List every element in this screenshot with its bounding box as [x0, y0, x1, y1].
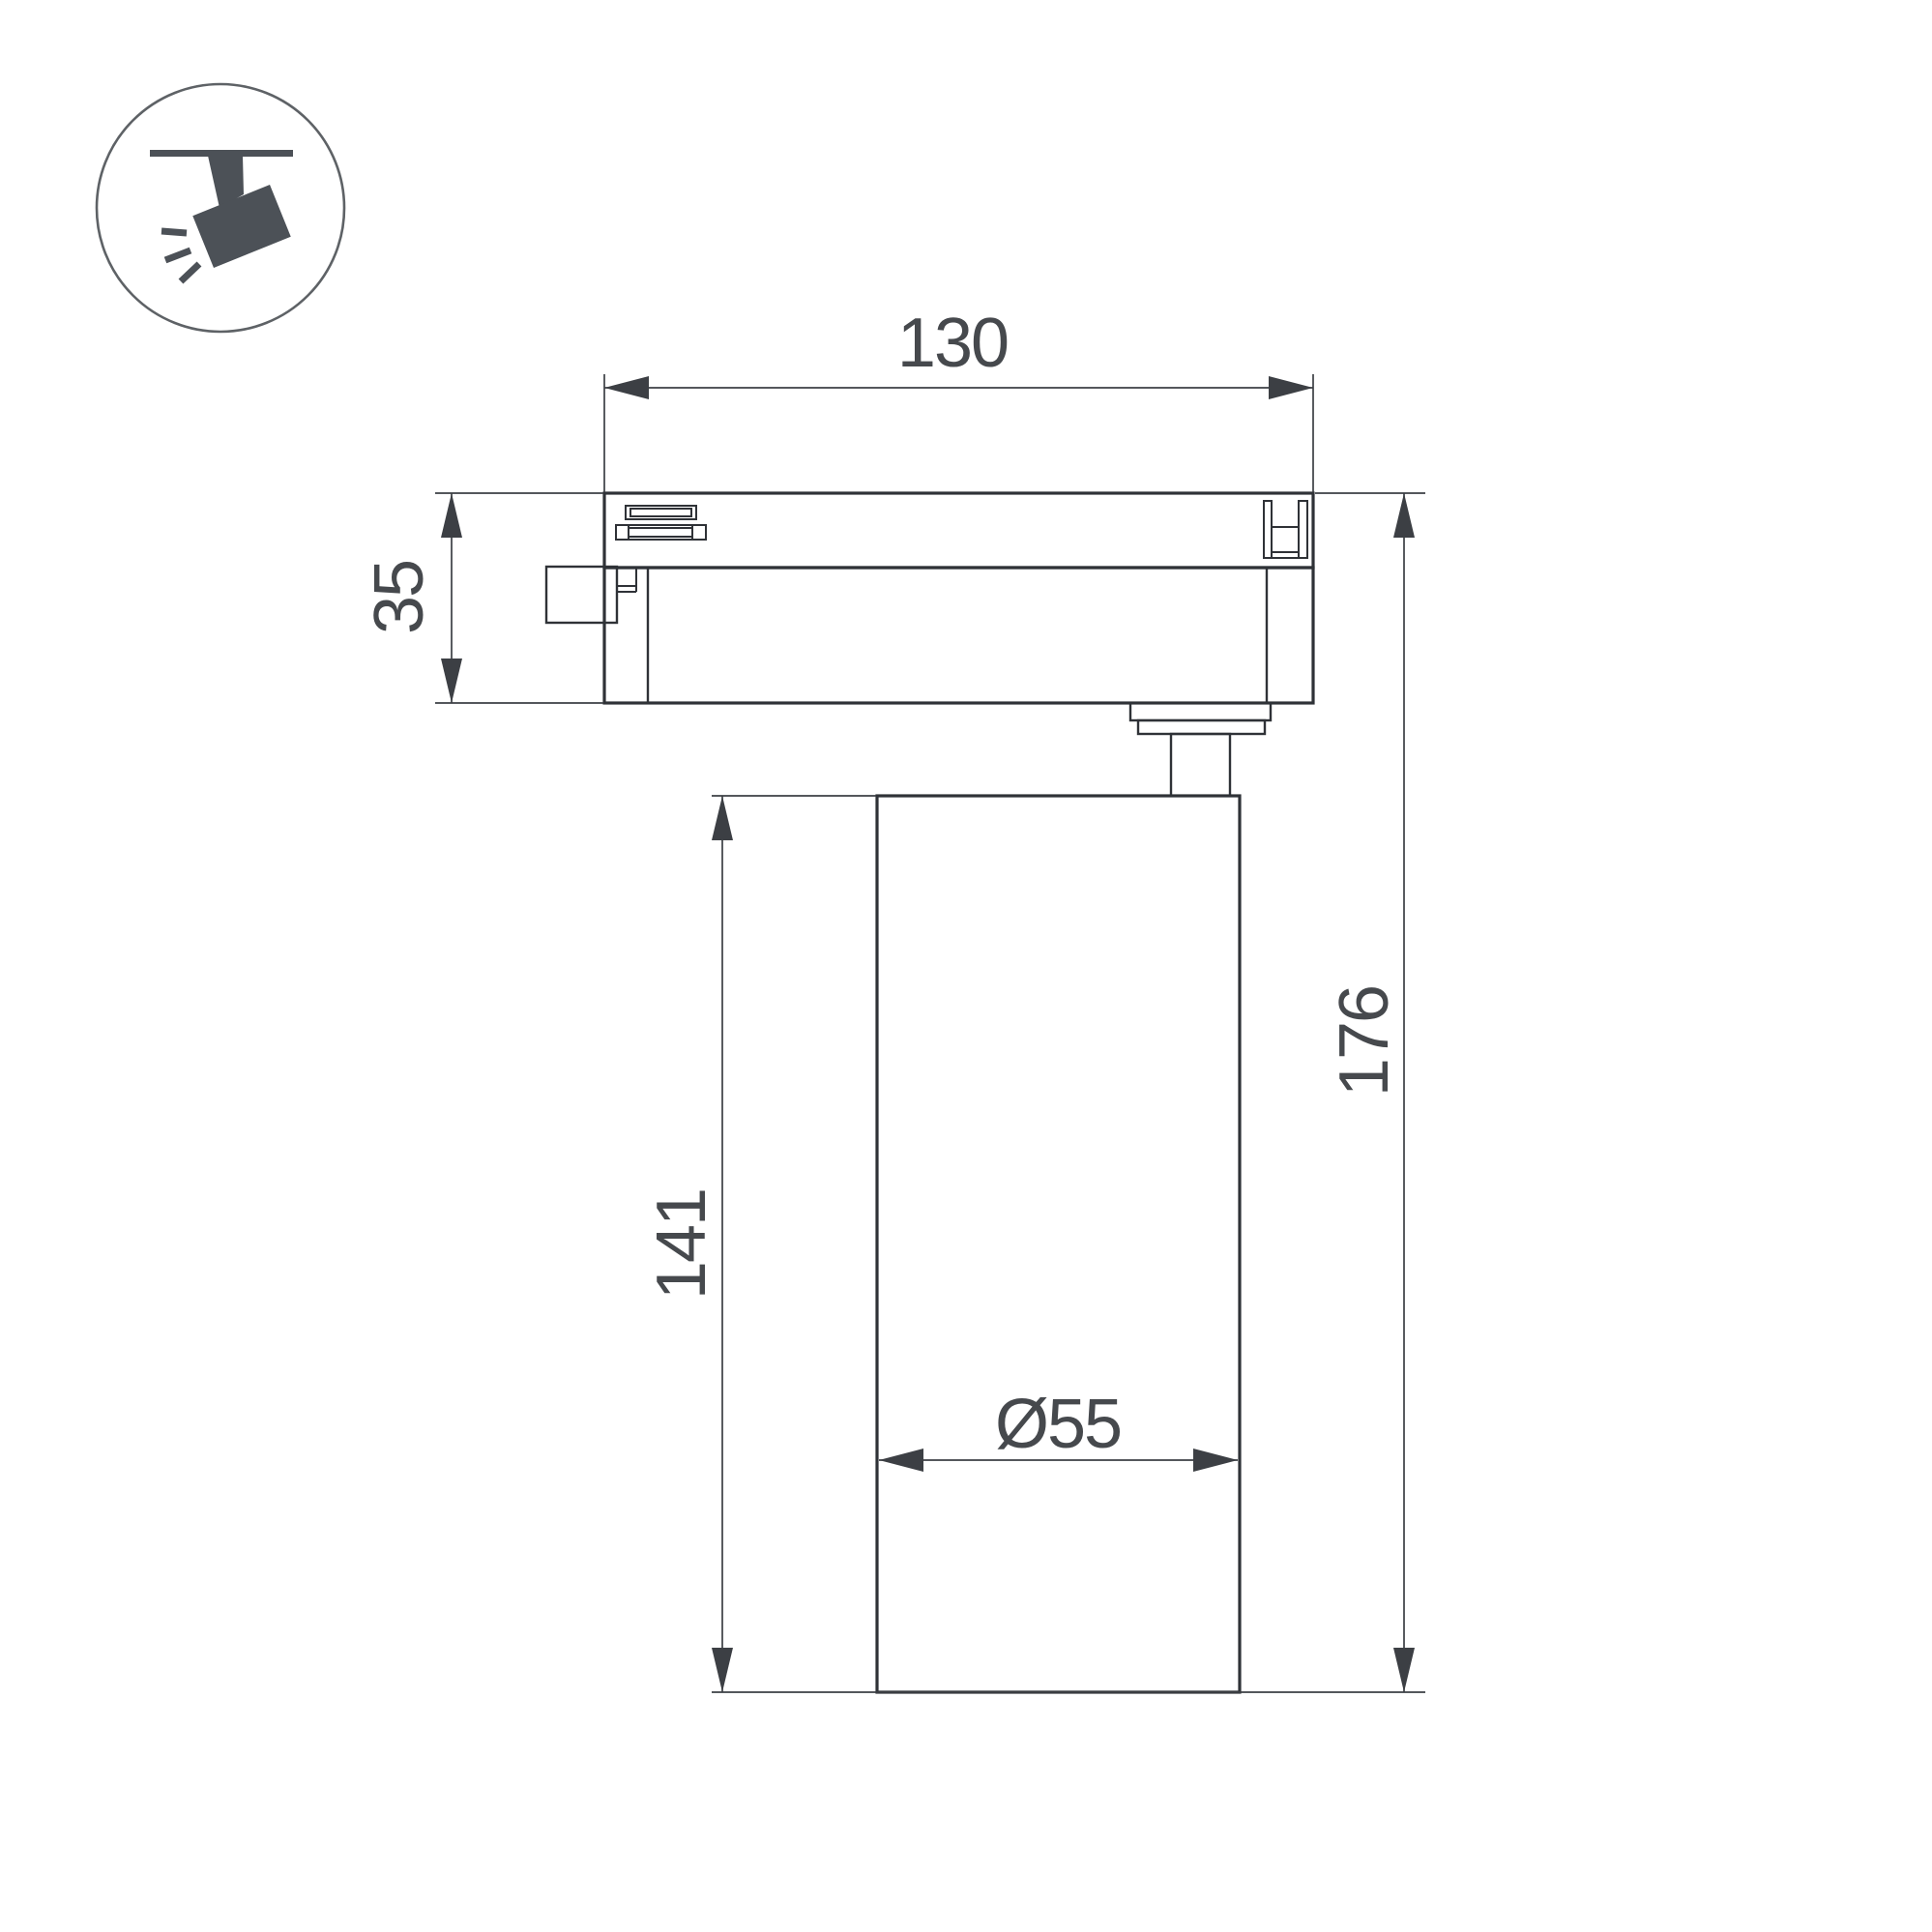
track-spotlight-icon — [97, 84, 344, 332]
icon-light-ray — [161, 231, 187, 233]
dim-overall-height: 176 — [1315, 493, 1425, 1692]
dimension-arrow — [1393, 493, 1415, 538]
end-latch-bracket — [1264, 501, 1307, 558]
dimension-arrow — [1193, 1449, 1238, 1472]
lamp-body-outline — [877, 796, 1240, 1692]
dimension-arrow — [441, 493, 462, 538]
adapter-housing-outline — [604, 568, 1313, 703]
contact-clip-upper-inner — [630, 509, 691, 516]
dimension-label: 141 — [643, 1189, 720, 1300]
dim-adapter-height: 35 — [361, 493, 603, 703]
dimension-drawing-canvas: 130 35 141 176 Ø55 — [0, 0, 1932, 1932]
latch-wall — [1299, 501, 1307, 558]
dim-track-width: 130 — [604, 305, 1313, 492]
dimension-label: Ø55 — [995, 1386, 1121, 1463]
dimension-arrow — [604, 376, 649, 399]
contact-clip-lower-inner — [629, 528, 692, 537]
track-adapter-top-outline — [604, 493, 1313, 568]
latch-wall — [1264, 501, 1272, 558]
dimension-arrow — [441, 659, 462, 703]
drawing-page: 130 35 141 176 Ø55 — [0, 0, 1932, 1932]
dimension-label: 130 — [897, 305, 1008, 382]
dimension-arrow — [712, 1648, 733, 1692]
dim-body-diameter: Ø55 — [879, 1386, 1238, 1472]
dimension-arrow — [879, 1449, 923, 1472]
dimension-arrow — [1269, 376, 1313, 399]
swivel-flange-lower — [1138, 720, 1265, 734]
dimension-label: 176 — [1326, 986, 1403, 1097]
fixture-outline — [546, 493, 1313, 1692]
dimension-arrow — [1393, 1648, 1415, 1692]
swivel-stem — [1171, 734, 1230, 796]
lock-lever-block — [546, 567, 617, 623]
dimension-label: 35 — [361, 561, 438, 634]
dim-body-height: 141 — [643, 796, 1425, 1692]
swivel-flange-upper — [1130, 703, 1271, 720]
icon-track-bar — [150, 150, 293, 157]
dimension-arrow — [712, 796, 733, 840]
